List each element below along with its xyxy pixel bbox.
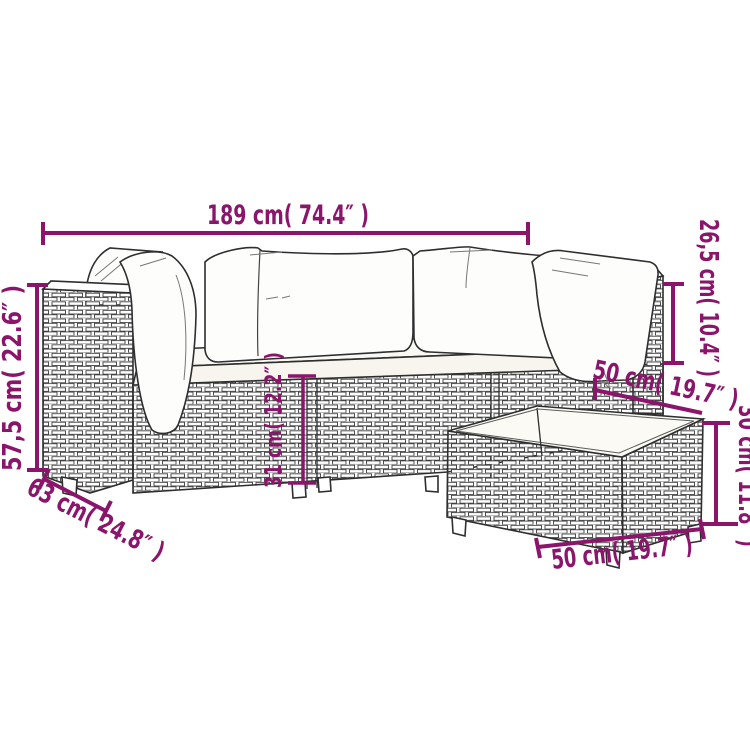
dim-overall-width-label: 189 cm( 74.4″ )	[207, 200, 369, 231]
dim-backrest-height-label: 26,5 cm( 10.4″ )	[693, 219, 723, 377]
dim-base-height-label: 31 cm( 12.2″ )	[262, 352, 287, 488]
left-armrest-panel	[43, 289, 133, 493]
sofa-foot	[425, 476, 438, 492]
sofa-foot	[318, 477, 331, 492]
dim-table-height-label: 30 cm( 11.8″ )	[732, 405, 750, 547]
diagram-canvas: 189 cm( 74.4″ ) 26,5 cm( 10.4″ ) 57,5 cm…	[0, 0, 750, 750]
dim-overall-height: 57,5 cm( 22.6″ )	[0, 285, 48, 471]
back-pillow-left	[205, 248, 413, 362]
dim-table-height: 30 cm( 11.8″ )	[702, 405, 750, 547]
table-foot	[452, 517, 466, 536]
dim-overall-height-label: 57,5 cm( 22.6″ )	[0, 285, 28, 471]
dim-overall-width: 189 cm( 74.4″ )	[43, 200, 528, 245]
product-dimension-diagram: 189 cm( 74.4″ ) 26,5 cm( 10.4″ ) 57,5 cm…	[0, 0, 750, 750]
dim-backrest-height: 26,5 cm( 10.4″ )	[663, 219, 723, 377]
